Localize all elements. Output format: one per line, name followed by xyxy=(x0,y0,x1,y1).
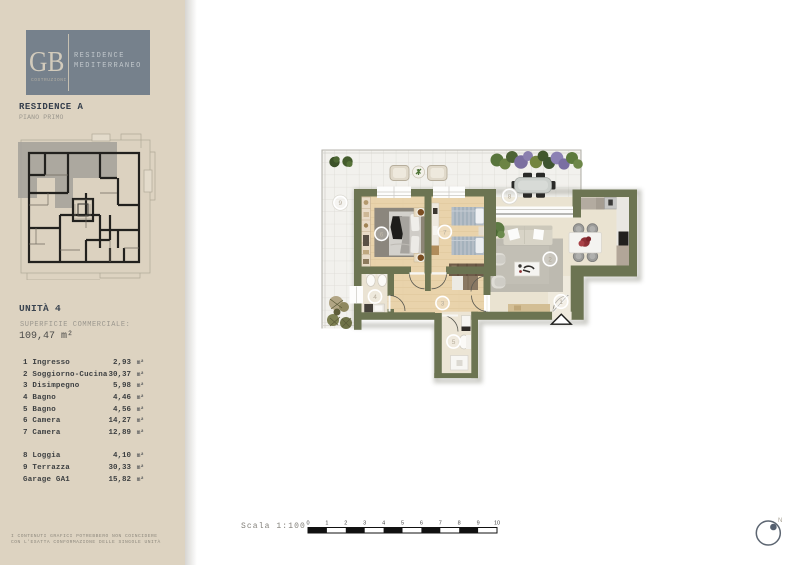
svg-text:4: 4 xyxy=(373,294,377,301)
svg-text:10: 10 xyxy=(494,521,500,527)
svg-text:3: 3 xyxy=(441,301,445,308)
svg-text:8: 8 xyxy=(458,521,461,527)
svg-text:6: 6 xyxy=(420,521,423,527)
svg-text:4: 4 xyxy=(382,521,385,527)
svg-text:3: 3 xyxy=(363,521,366,527)
svg-text:9: 9 xyxy=(338,200,342,207)
svg-text:1: 1 xyxy=(325,521,328,527)
svg-text:N: N xyxy=(778,518,782,524)
svg-text:7: 7 xyxy=(443,229,447,236)
svg-text:9: 9 xyxy=(477,521,480,527)
svg-text:8: 8 xyxy=(508,194,512,201)
svg-text:1: 1 xyxy=(559,299,563,306)
svg-text:5: 5 xyxy=(452,339,456,346)
svg-text:2: 2 xyxy=(548,257,552,264)
svg-text:6: 6 xyxy=(380,231,384,238)
svg-text:7: 7 xyxy=(439,521,442,527)
svg-text:2: 2 xyxy=(344,521,347,527)
svg-text:5: 5 xyxy=(401,521,404,527)
svg-text:0: 0 xyxy=(306,521,309,527)
